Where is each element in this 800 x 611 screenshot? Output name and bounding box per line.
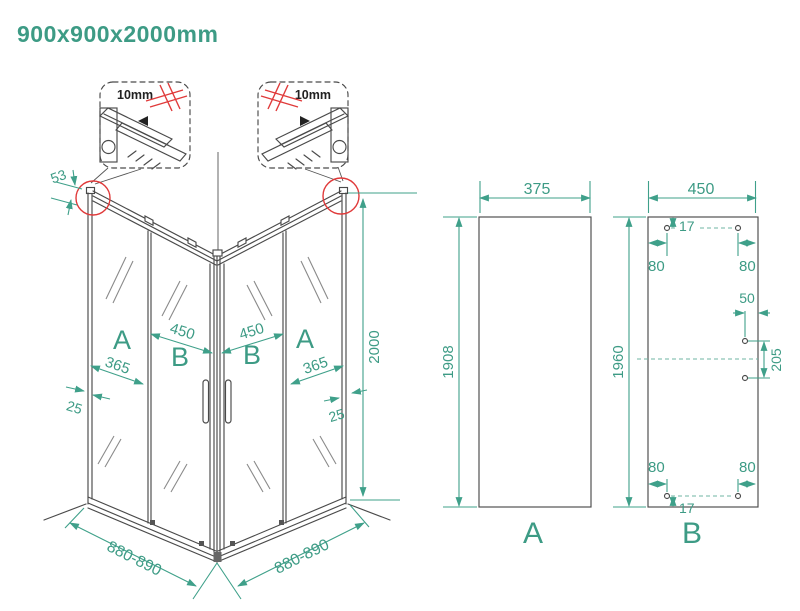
panel-b-drawing: 450 1960 17 80 80 50 205 bbox=[610, 181, 784, 550]
detail-callout-left: 10mm bbox=[91, 82, 190, 184]
dim-panel-b-top-right-inset: 80 bbox=[739, 258, 756, 275]
shower-enclosure-iso bbox=[44, 152, 390, 562]
dim-panel-b-bottom-left-inset: 80 bbox=[648, 459, 665, 476]
dim-panel-b-width: 450 bbox=[688, 181, 715, 198]
dim-bottom-width-right-value: 880-890 bbox=[272, 536, 332, 577]
iso-dimensions: 53 2000 450 450 365 bbox=[48, 166, 417, 599]
drawing-canvas: 10mm 10mm bbox=[0, 0, 800, 611]
corner-profile-detail-left bbox=[100, 108, 186, 169]
panel-b-hole-bottom-right bbox=[736, 494, 741, 499]
panel-b-hole-top-left bbox=[665, 226, 670, 231]
panel-b-hole-side-lower bbox=[743, 376, 748, 381]
dim-fixed-width-left-value: 365 bbox=[103, 354, 132, 378]
corner-post bbox=[213, 250, 222, 562]
dim-height-value: 2000 bbox=[366, 330, 383, 363]
enclosure-wall-left bbox=[44, 188, 217, 563]
dim-bottom-width-left: 880-890 bbox=[65, 508, 217, 599]
dim-panel-b-side-hole-spacing: 205 bbox=[768, 348, 784, 372]
callout-leader-right bbox=[305, 167, 343, 182]
dim-panel-a-height: 1908 bbox=[440, 345, 457, 378]
technical-drawing-page: 900x900x2000mm bbox=[0, 0, 800, 611]
iso-label-door-left: B bbox=[171, 342, 189, 372]
dim-panel-b-side-edge-inset: 50 bbox=[739, 290, 755, 306]
joint-highlight-circle-left bbox=[76, 181, 110, 215]
dim-profile-top-value: 53 bbox=[48, 166, 68, 186]
dim-wall-profile-right-value: 25 bbox=[327, 405, 347, 425]
dim-wall-profile-left: 25 bbox=[65, 387, 110, 417]
dim-door-width-left-value: 450 bbox=[168, 320, 197, 344]
dim-panel-b-top-hole-offset: 17 bbox=[679, 218, 695, 234]
panel-a-outline bbox=[479, 217, 591, 507]
iso-label-fixed-right: A bbox=[296, 324, 314, 354]
panel-b-hole-top-right bbox=[736, 226, 741, 231]
dim-fixed-width-left: 365 bbox=[91, 354, 143, 384]
panel-b-label: B bbox=[682, 517, 702, 550]
dim-fixed-width-right: 365 bbox=[291, 354, 343, 384]
dim-wall-profile-left-value: 25 bbox=[65, 397, 85, 417]
dim-bottom-width-left-value: 880-890 bbox=[104, 538, 164, 579]
panel-b-hole-side-upper bbox=[743, 339, 748, 344]
dim-panel-b-bottom-right-inset: 80 bbox=[739, 459, 756, 476]
panel-b-hole-bottom-left bbox=[665, 494, 670, 499]
iso-label-fixed-left: A bbox=[113, 325, 131, 355]
dim-panel-b-top-left-inset: 80 bbox=[648, 258, 665, 275]
dim-height: 2000 bbox=[348, 193, 417, 500]
dim-fixed-width-right-value: 365 bbox=[301, 354, 330, 378]
detail-callout-right: 10mm bbox=[258, 82, 348, 182]
dim-panel-b-bottom-hole-offset: 17 bbox=[679, 500, 695, 516]
enclosure-wall-right bbox=[217, 188, 390, 563]
dim-profile-top: 53 bbox=[48, 166, 82, 215]
iso-label-door-right: B bbox=[243, 340, 261, 370]
corner-profile-detail-right bbox=[262, 108, 348, 169]
dim-panel-a-width: 375 bbox=[524, 181, 551, 198]
dim-panel-b-height: 1960 bbox=[610, 345, 627, 378]
panel-a-label: A bbox=[523, 517, 543, 550]
panel-a-drawing: 375 1908 A bbox=[440, 181, 591, 550]
